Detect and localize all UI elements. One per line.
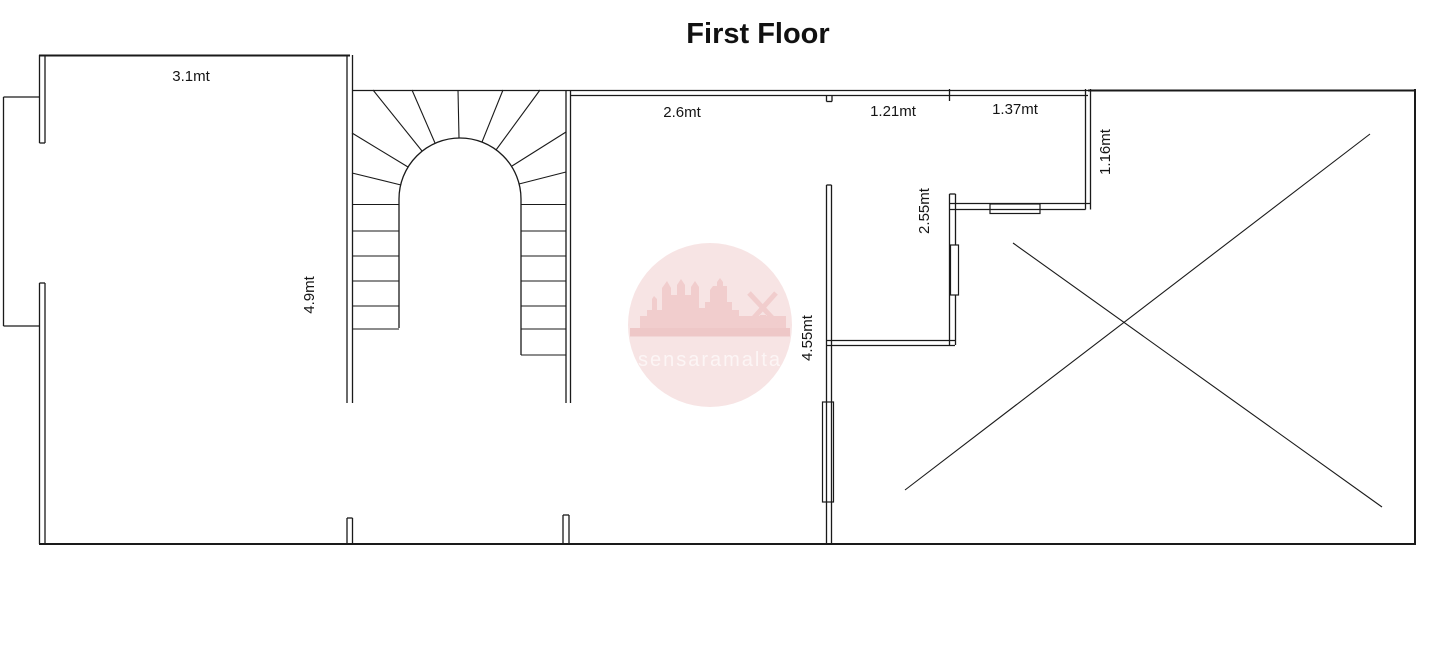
watermark-logo: sensaramalta <box>628 243 792 407</box>
watermark-text: sensaramalta <box>638 349 782 371</box>
dimension-label-middle-room-width: 2.6mt <box>663 104 701 121</box>
radiator-symbol <box>951 245 959 295</box>
staircase-treads <box>352 90 566 355</box>
dimension-label-bath-inner-height: 2.55mt <box>916 187 933 234</box>
floor-plan-drawing: sensaramalta <box>0 0 1440 662</box>
dimension-label-middle-wall-height: 4.55mt <box>799 314 816 361</box>
top-wall <box>352 89 1416 102</box>
page-title: First Floor <box>686 18 829 50</box>
left-room-walls <box>4 55 351 544</box>
middle-partition-wall <box>823 185 834 544</box>
staircase-arch <box>399 138 521 199</box>
window-symbol-horizontal <box>990 204 1040 214</box>
dimension-label-left-room-width: 3.1mt <box>172 68 210 85</box>
void-cross-marks <box>905 134 1382 507</box>
dimension-label-top-hall-width: 1.21mt <box>870 103 917 120</box>
floor-plan-canvas: sensaramalta <box>0 0 1440 662</box>
dimension-label-left-room-height: 4.9mt <box>301 275 318 313</box>
watermark-band <box>630 328 790 337</box>
dimension-label-shaft-depth: 1.16mt <box>1097 128 1114 175</box>
top-right-room-walls <box>827 89 1091 346</box>
dimension-label-top-bath-width: 1.37mt <box>992 101 1039 118</box>
